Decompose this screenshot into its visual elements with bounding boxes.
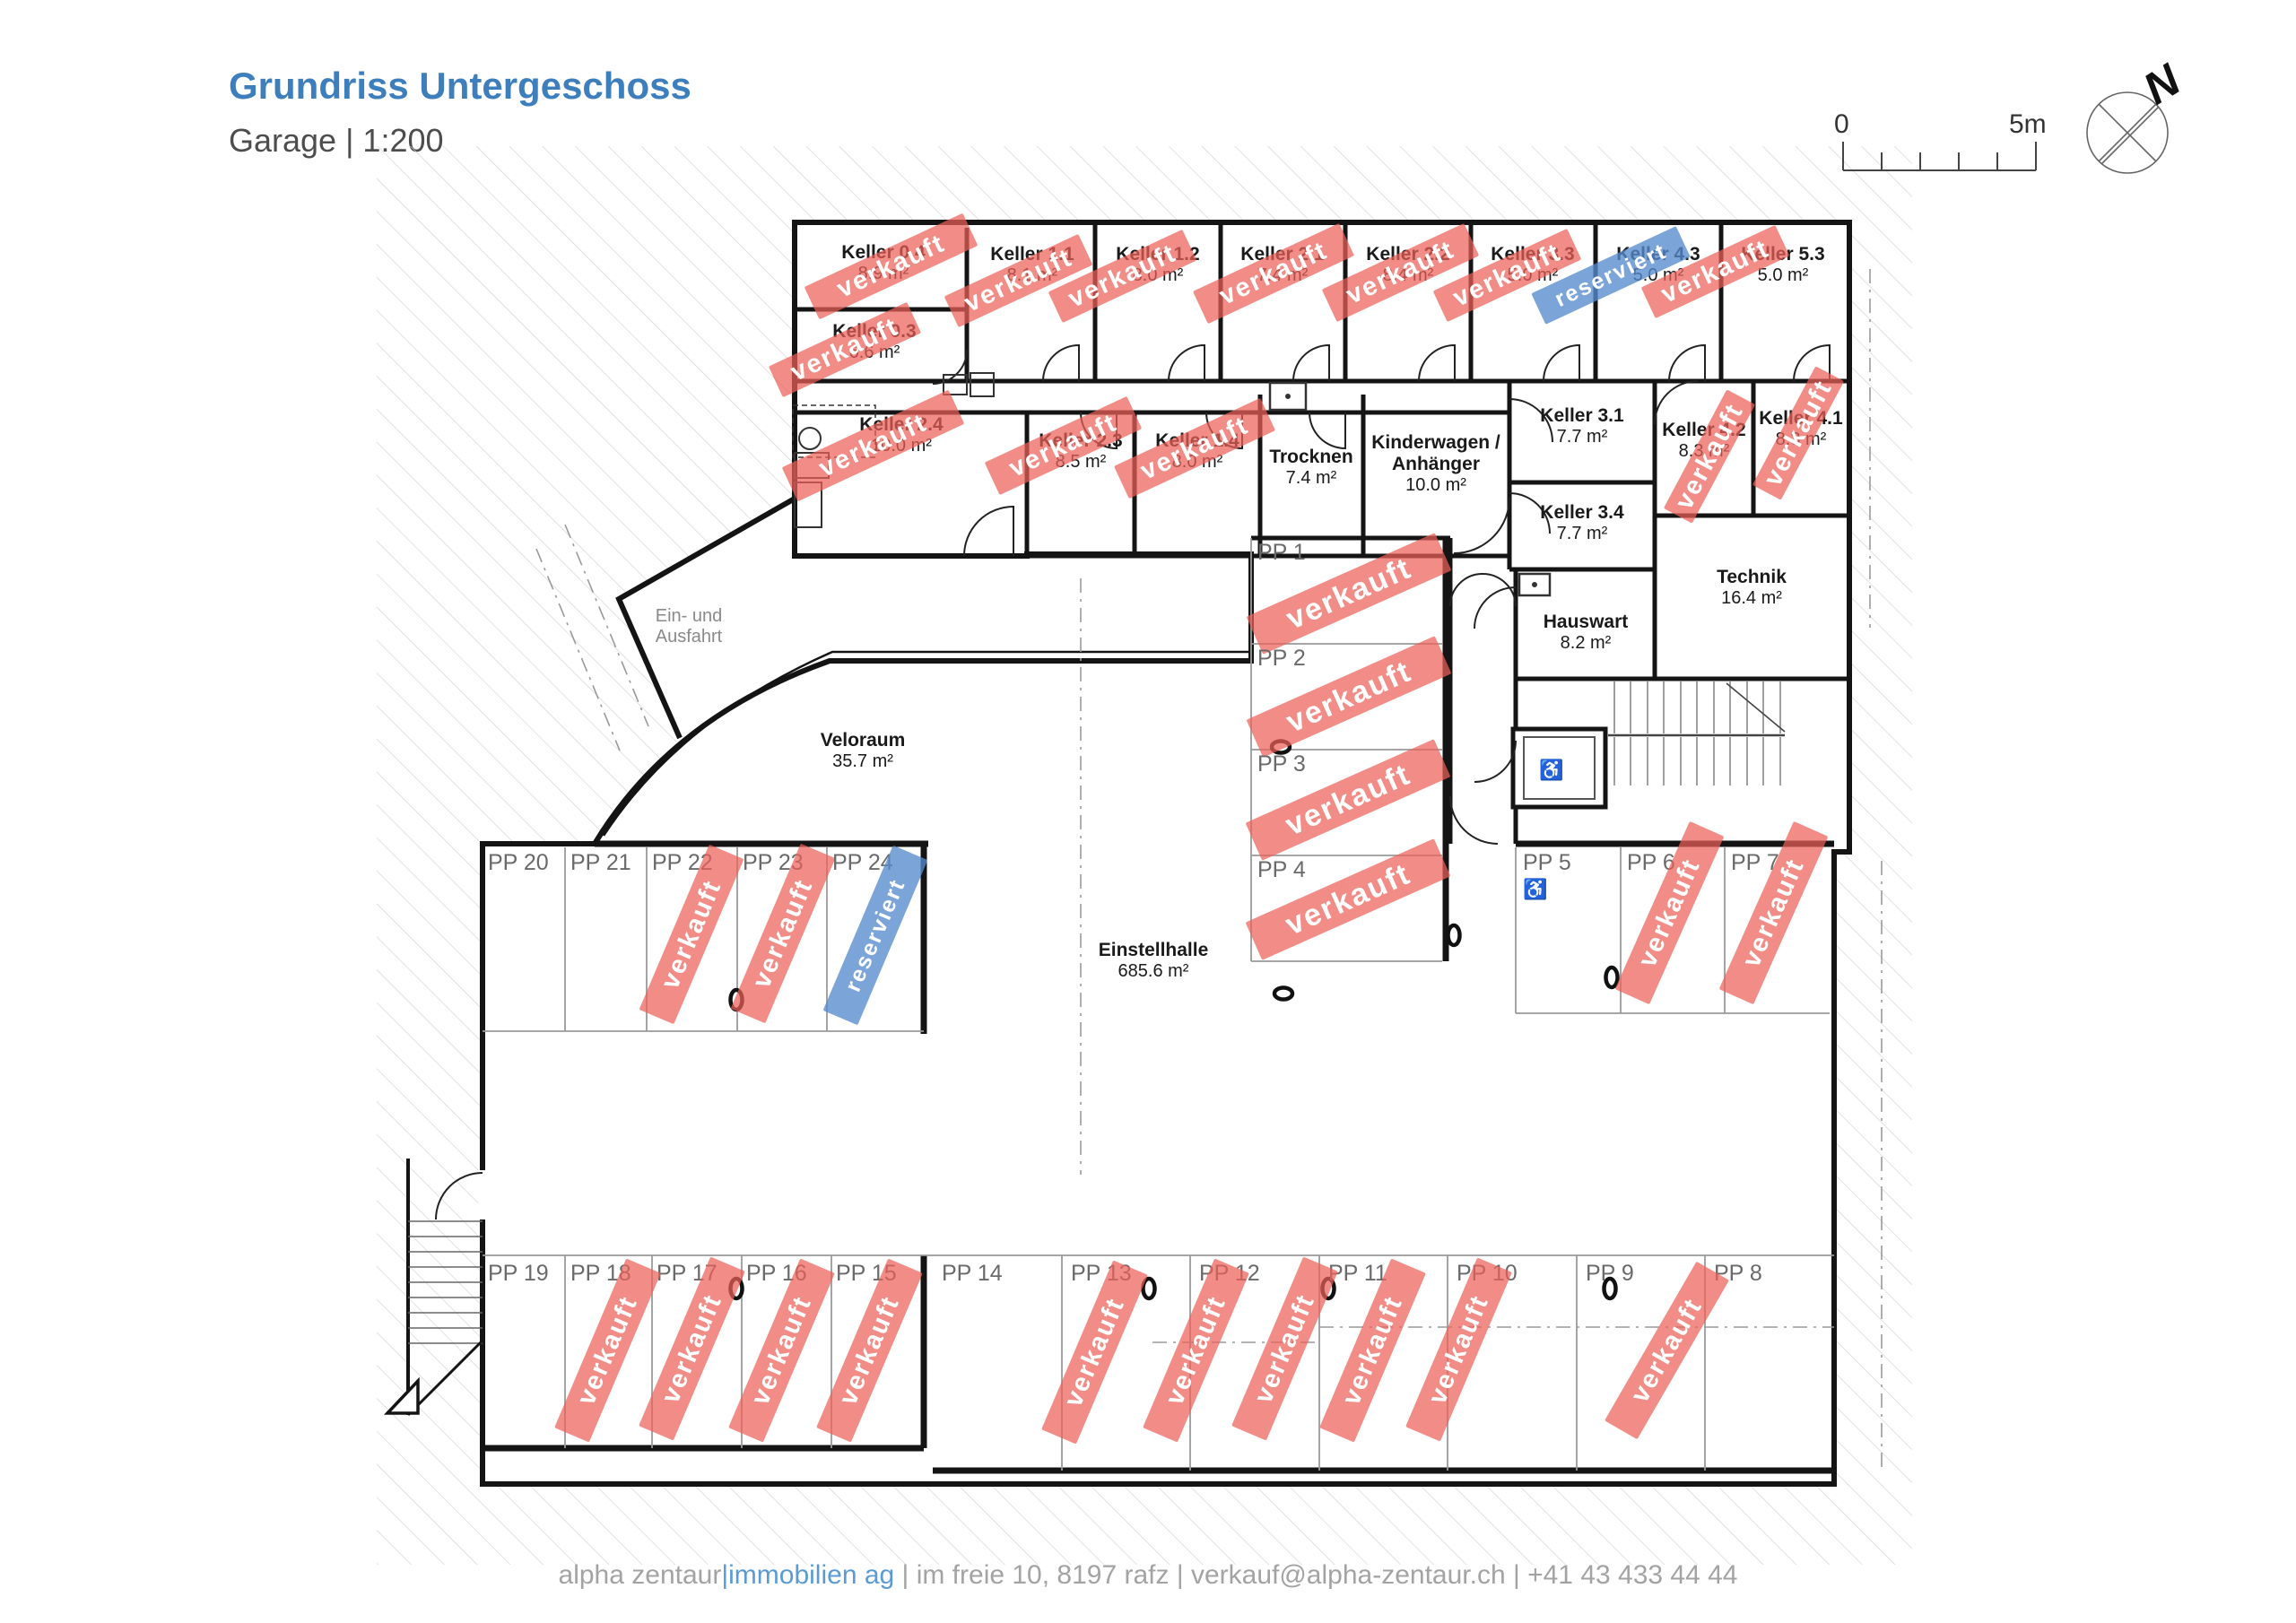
room-label: Keller 3.17.7 m²	[1540, 405, 1623, 447]
footer-address: im freie 10, 8197 rafz	[917, 1560, 1170, 1590]
area-label: Ein- und Ausfahrt	[656, 606, 723, 647]
room-label: Kinderwagen / Anhänger10.0 m²	[1371, 432, 1500, 496]
footer-contact: alpha zentaur|immobilien ag | im freie 1…	[0, 1560, 2296, 1591]
room-label: Technik16.4 m²	[1717, 567, 1787, 609]
room-label: Keller 3.47.7 m²	[1540, 502, 1623, 544]
area-label: Veloraum35.7 m²	[821, 730, 906, 772]
compass-north-label: N	[2135, 54, 2189, 114]
parking-stall-label: PP 9	[1586, 1261, 1634, 1287]
parking-stall-label: PP 2	[1257, 646, 1306, 672]
area-label: Einstellhalle685.6 m²	[1099, 940, 1209, 982]
elevator-wheelchair-icon: ♿	[1539, 759, 1563, 781]
parking-stall-label: PP 14	[942, 1261, 1003, 1287]
parking-stall-label: PP 4	[1257, 857, 1306, 883]
room-label: Hauswart8.2 m²	[1544, 612, 1629, 654]
parking-stall-label: PP 19	[488, 1261, 549, 1287]
parking-stall-label: PP 20	[488, 850, 549, 876]
footer-email: verkauf@alpha-zentaur.ch	[1191, 1560, 1506, 1590]
parking-stall-label: PP 21	[570, 850, 631, 876]
room-label: Trocknen7.4 m²	[1269, 447, 1352, 489]
footer-brand-2: |immobilien ag	[721, 1560, 894, 1590]
parking-stall-label: PP 11	[1328, 1261, 1387, 1287]
parking-stall-label: PP 1	[1257, 540, 1306, 566]
parking-stall-label: PP 3	[1257, 751, 1306, 777]
wheelchair-icon: ♿	[1523, 878, 1571, 901]
scale-end-label: 5m	[2009, 109, 2047, 139]
floorplan-page: Grundriss Untergeschoss Garage | 1:200	[0, 0, 2296, 1623]
footer-phone: +41 43 433 44 44	[1527, 1560, 1737, 1590]
scale-zero-label: 0	[1834, 109, 1849, 139]
footer-brand: alpha zentaur	[559, 1560, 722, 1590]
parking-stall-label: PP 5♿	[1523, 850, 1571, 901]
